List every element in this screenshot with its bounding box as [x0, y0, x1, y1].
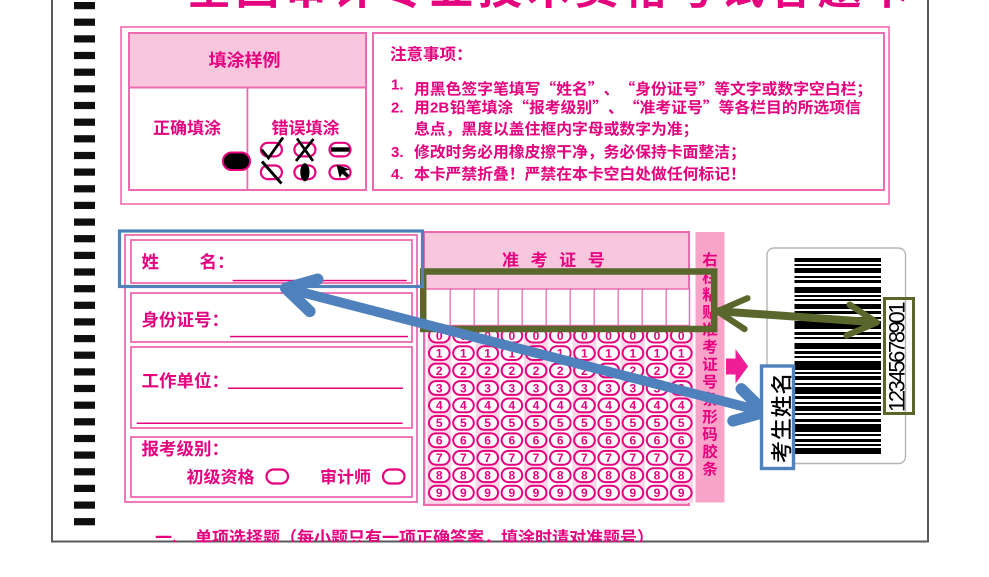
svg-text:5: 5: [508, 416, 515, 430]
svg-text:7: 7: [533, 451, 540, 465]
svg-text:2.: 2.: [391, 100, 404, 117]
svg-text:7: 7: [460, 451, 467, 465]
svg-text:6: 6: [557, 434, 564, 448]
svg-text:3: 3: [581, 381, 588, 395]
svg-text:1.: 1.: [391, 77, 404, 94]
svg-text:7: 7: [581, 451, 588, 465]
svg-text:8: 8: [460, 469, 467, 483]
svg-text:7: 7: [484, 451, 491, 465]
svg-text:8: 8: [654, 469, 661, 483]
svg-text:4: 4: [484, 399, 491, 413]
svg-text:6: 6: [508, 434, 515, 448]
svg-text:1: 1: [484, 346, 491, 360]
svg-text:8: 8: [678, 469, 685, 483]
svg-text:8: 8: [629, 469, 636, 483]
svg-text:2: 2: [460, 364, 467, 378]
svg-text:2: 2: [533, 364, 540, 378]
svg-text:1: 1: [605, 346, 612, 360]
svg-text:3: 3: [557, 381, 564, 395]
svg-text:1: 1: [436, 346, 443, 360]
svg-text:7: 7: [654, 451, 661, 465]
svg-text:4: 4: [436, 399, 443, 413]
svg-text:4: 4: [629, 399, 636, 413]
svg-text:5: 5: [654, 416, 661, 430]
svg-text:3: 3: [460, 381, 467, 395]
svg-text:8: 8: [484, 469, 491, 483]
svg-text:1: 1: [460, 346, 467, 360]
svg-text:4: 4: [581, 399, 588, 413]
svg-text:9: 9: [629, 486, 636, 500]
svg-text:2B: 2B: [430, 100, 449, 117]
svg-text:9: 9: [533, 486, 540, 500]
svg-text:6: 6: [605, 434, 612, 448]
svg-text:6: 6: [654, 434, 661, 448]
svg-text:2: 2: [436, 364, 443, 378]
svg-text:6: 6: [436, 434, 443, 448]
svg-text:2: 2: [508, 364, 515, 378]
svg-text:9: 9: [557, 486, 564, 500]
svg-text:1: 1: [654, 346, 661, 360]
svg-text:6: 6: [629, 434, 636, 448]
svg-text:7: 7: [436, 451, 443, 465]
svg-text:5: 5: [557, 416, 564, 430]
svg-text:4: 4: [508, 399, 515, 413]
svg-text:5: 5: [678, 416, 685, 430]
svg-text:3: 3: [508, 381, 515, 395]
svg-text:5: 5: [484, 416, 491, 430]
svg-text:8: 8: [436, 469, 443, 483]
svg-text:6: 6: [484, 434, 491, 448]
svg-text:9: 9: [605, 486, 612, 500]
svg-text:4.: 4.: [391, 166, 404, 183]
svg-text:5: 5: [581, 416, 588, 430]
svg-text:2: 2: [678, 364, 685, 378]
svg-text:7: 7: [557, 451, 564, 465]
svg-text:6: 6: [460, 434, 467, 448]
svg-text:3: 3: [533, 381, 540, 395]
svg-text:3: 3: [605, 381, 612, 395]
svg-text:8: 8: [508, 469, 515, 483]
svg-text:2: 2: [557, 364, 564, 378]
svg-text:4: 4: [678, 399, 685, 413]
svg-text:9: 9: [654, 486, 661, 500]
svg-text:6: 6: [581, 434, 588, 448]
svg-text:5: 5: [629, 416, 636, 430]
svg-text:3: 3: [436, 381, 443, 395]
svg-text:9: 9: [484, 486, 491, 500]
svg-text:4: 4: [605, 399, 612, 413]
svg-text:4: 4: [654, 399, 661, 413]
svg-text:5: 5: [460, 416, 467, 430]
svg-text:9: 9: [678, 486, 685, 500]
svg-text:9: 9: [460, 486, 467, 500]
svg-text:1: 1: [581, 346, 588, 360]
svg-text:7: 7: [678, 451, 685, 465]
svg-text:9: 9: [436, 486, 443, 500]
svg-text:9: 9: [508, 486, 515, 500]
svg-text:6: 6: [533, 434, 540, 448]
svg-text:2: 2: [654, 364, 661, 378]
svg-text:8: 8: [557, 469, 564, 483]
svg-text:9: 9: [581, 486, 588, 500]
svg-text:6: 6: [678, 434, 685, 448]
svg-text:4: 4: [533, 399, 540, 413]
svg-text:2: 2: [484, 364, 491, 378]
svg-text:3.: 3.: [391, 144, 404, 161]
svg-text:8: 8: [533, 469, 540, 483]
svg-text:5: 5: [605, 416, 612, 430]
svg-text:7: 7: [605, 451, 612, 465]
svg-text:8: 8: [605, 469, 612, 483]
svg-text:4: 4: [460, 399, 467, 413]
svg-text:12345678901: 12345678901: [884, 302, 909, 412]
svg-text:5: 5: [436, 416, 443, 430]
svg-text:1: 1: [678, 346, 685, 360]
svg-text:1: 1: [629, 346, 636, 360]
svg-text:8: 8: [581, 469, 588, 483]
svg-text:7: 7: [508, 451, 515, 465]
svg-text:7: 7: [629, 451, 636, 465]
svg-text:5: 5: [533, 416, 540, 430]
svg-text:3: 3: [484, 381, 491, 395]
svg-text:4: 4: [557, 399, 564, 413]
